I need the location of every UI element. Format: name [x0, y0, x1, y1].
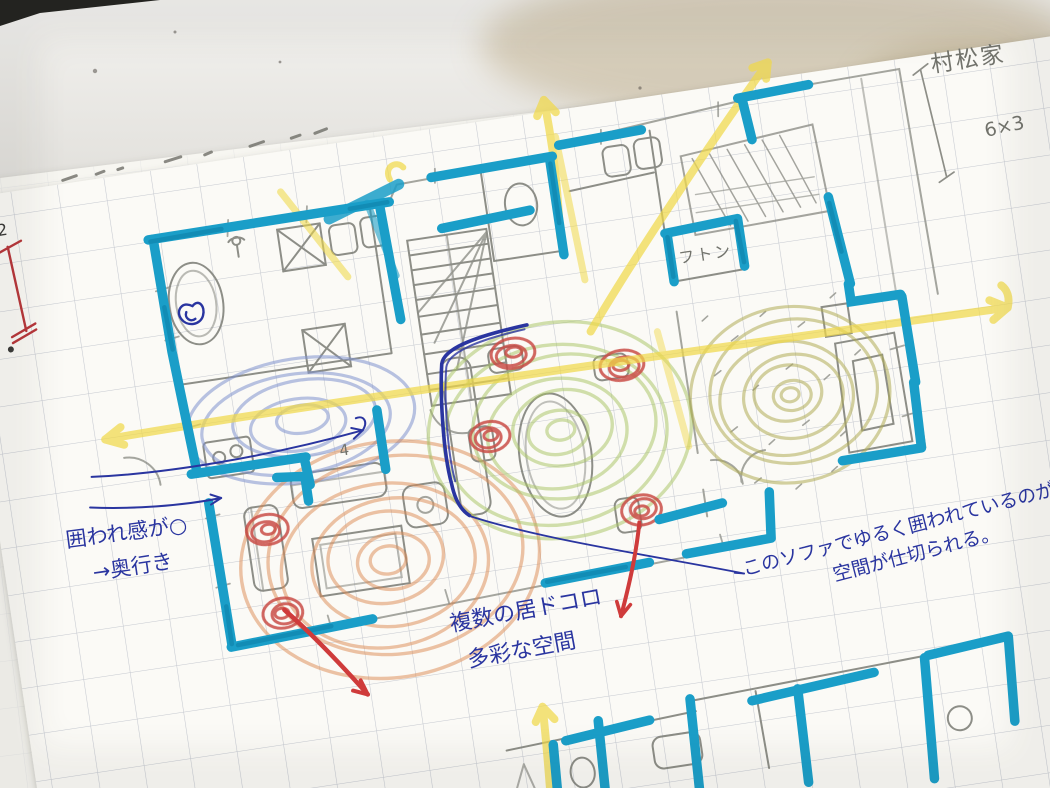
- sketch-canvas: 2: [0, 0, 1050, 788]
- photo-of-floorplan-sketch: 2: [0, 0, 1050, 788]
